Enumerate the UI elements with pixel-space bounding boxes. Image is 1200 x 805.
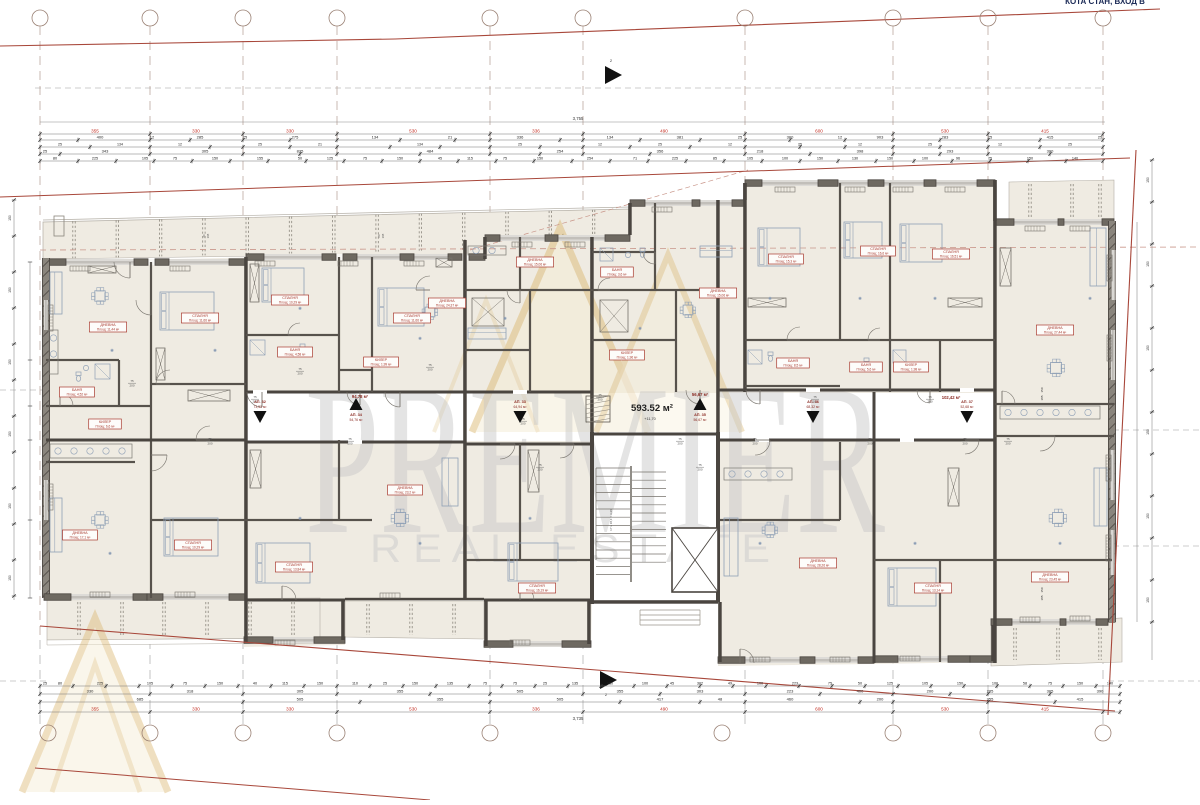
svg-text:150: 150 bbox=[1146, 429, 1150, 435]
svg-text:75: 75 bbox=[173, 157, 177, 161]
svg-text:275: 275 bbox=[292, 135, 299, 140]
svg-text:400: 400 bbox=[857, 689, 864, 694]
svg-text:150: 150 bbox=[1040, 587, 1044, 592]
svg-text:336: 336 bbox=[532, 129, 540, 134]
svg-text:75: 75 bbox=[698, 463, 702, 467]
svg-text:343: 343 bbox=[102, 149, 109, 154]
svg-text:484: 484 bbox=[427, 149, 434, 154]
svg-text:355: 355 bbox=[437, 697, 444, 702]
svg-text:356: 356 bbox=[657, 149, 664, 154]
svg-text:Площ: 10,29 м²: Площ: 10,29 м² bbox=[182, 546, 204, 550]
svg-text:✺: ✺ bbox=[298, 516, 302, 521]
svg-text:✺: ✺ bbox=[418, 541, 422, 546]
svg-text:285: 285 bbox=[197, 135, 204, 140]
svg-text:390: 390 bbox=[1047, 149, 1054, 154]
svg-text:БАНЯ: БАНЯ bbox=[861, 363, 871, 367]
svg-text:400: 400 bbox=[97, 135, 104, 140]
svg-text:150: 150 bbox=[1077, 682, 1083, 686]
svg-text:АП. 34: АП. 34 bbox=[350, 413, 363, 417]
svg-text:75: 75 bbox=[813, 395, 817, 399]
svg-text:600: 600 bbox=[815, 129, 823, 134]
svg-text:40: 40 bbox=[253, 682, 257, 686]
svg-text:Площ: 15,06 м²: Площ: 15,06 м² bbox=[524, 263, 546, 267]
svg-text:СПАЛНЯ: СПАЛНЯ bbox=[870, 247, 886, 251]
svg-text:БАНЯ: БАНЯ bbox=[72, 388, 82, 392]
svg-text:СПАЛНЯ: СПАЛНЯ bbox=[925, 584, 941, 588]
svg-text:25: 25 bbox=[518, 143, 522, 147]
svg-text:283: 283 bbox=[942, 135, 949, 140]
svg-text:130: 130 bbox=[852, 157, 858, 161]
svg-text:835: 835 bbox=[297, 149, 304, 154]
svg-text:223: 223 bbox=[787, 689, 794, 694]
svg-text:Площ: 11,66 м²: Площ: 11,66 м² bbox=[401, 319, 423, 323]
svg-text:302: 302 bbox=[697, 682, 703, 686]
svg-text:150: 150 bbox=[8, 215, 12, 221]
svg-text:318: 318 bbox=[187, 689, 194, 694]
svg-text:150: 150 bbox=[8, 503, 12, 509]
svg-text:Площ: 1,99 м²: Площ: 1,99 м² bbox=[371, 363, 392, 367]
svg-text:Площ: 4,52 м²: Площ: 4,52 м² bbox=[67, 393, 88, 397]
svg-text:ДНЕВНА: ДНЕВНА bbox=[439, 299, 455, 303]
svg-text:150: 150 bbox=[8, 575, 12, 581]
svg-text:355: 355 bbox=[91, 707, 99, 712]
svg-text:593.52 м²: 593.52 м² bbox=[631, 403, 673, 414]
svg-text:530: 530 bbox=[409, 707, 417, 712]
svg-text:75: 75 bbox=[208, 437, 212, 441]
svg-text:150: 150 bbox=[8, 359, 12, 365]
svg-text:100: 100 bbox=[757, 682, 763, 686]
svg-text:134: 134 bbox=[117, 143, 123, 147]
svg-text:390: 390 bbox=[1097, 689, 1104, 694]
svg-text:150: 150 bbox=[8, 431, 12, 437]
svg-text:150: 150 bbox=[397, 157, 403, 161]
svg-text:200: 200 bbox=[520, 421, 525, 425]
svg-text:КИЛЕР: КИЛЕР bbox=[905, 363, 918, 367]
svg-text:25: 25 bbox=[43, 149, 48, 154]
svg-text:Площ: 13,84 м²: Площ: 13,84 м² bbox=[283, 568, 305, 572]
svg-text:КОТА СТАН, ВХОД В: КОТА СТАН, ВХОД В bbox=[1065, 0, 1145, 6]
svg-text:Площ: 23,45 м²: Площ: 23,45 м² bbox=[1039, 578, 1061, 582]
svg-text:БАНЯ: БАНЯ bbox=[290, 348, 300, 352]
svg-text:75: 75 bbox=[928, 395, 932, 399]
svg-text:25: 25 bbox=[658, 143, 662, 147]
svg-text:21: 21 bbox=[318, 143, 322, 147]
svg-text:75: 75 bbox=[503, 157, 507, 161]
svg-text:150: 150 bbox=[1146, 177, 1150, 183]
svg-text:195: 195 bbox=[381, 233, 385, 238]
svg-text:✺: ✺ bbox=[108, 551, 112, 556]
svg-text:200: 200 bbox=[962, 441, 967, 445]
svg-text:✺: ✺ bbox=[933, 296, 937, 301]
svg-text:355: 355 bbox=[617, 689, 624, 694]
svg-text:25: 25 bbox=[243, 135, 248, 140]
svg-text:Площ: 6,6 м²: Площ: 6,6 м² bbox=[96, 425, 115, 429]
svg-text:✺: ✺ bbox=[298, 306, 302, 311]
svg-text:200: 200 bbox=[537, 467, 542, 471]
svg-text:75: 75 bbox=[483, 682, 487, 686]
svg-text:150: 150 bbox=[957, 682, 963, 686]
svg-text:✺: ✺ bbox=[1088, 296, 1092, 301]
svg-text:293: 293 bbox=[947, 149, 954, 154]
svg-text:336: 336 bbox=[517, 135, 524, 140]
svg-text:125: 125 bbox=[887, 682, 893, 686]
svg-text:200: 200 bbox=[927, 689, 934, 694]
svg-text:БАНЯ: БАНЯ bbox=[612, 268, 622, 272]
svg-text:330: 330 bbox=[286, 707, 294, 712]
svg-text:75: 75 bbox=[428, 363, 432, 367]
svg-text:Площ: 16,51 м²: Площ: 16,51 м² bbox=[940, 255, 962, 259]
svg-text:140: 140 bbox=[1107, 682, 1113, 686]
svg-text:100: 100 bbox=[642, 682, 648, 686]
svg-text:200: 200 bbox=[597, 397, 602, 401]
svg-text:150: 150 bbox=[1027, 157, 1033, 161]
svg-text:134: 134 bbox=[417, 143, 423, 147]
svg-text:415: 415 bbox=[1077, 697, 1084, 702]
svg-text:185: 185 bbox=[1040, 395, 1044, 400]
svg-text:71: 71 bbox=[633, 157, 637, 161]
svg-text:460: 460 bbox=[787, 697, 794, 702]
svg-text:530: 530 bbox=[941, 707, 949, 712]
svg-text:140: 140 bbox=[1072, 157, 1078, 161]
svg-text:200: 200 bbox=[347, 441, 352, 445]
svg-text:Площ: 1,98 м²: Площ: 1,98 м² bbox=[901, 368, 922, 372]
svg-text:СПАЛНЯ: СПАЛНЯ bbox=[185, 541, 201, 545]
svg-text:300: 300 bbox=[787, 135, 794, 140]
svg-text:17 x 18,1 = 3,26: 17 x 18,1 = 3,26 bbox=[609, 509, 613, 531]
svg-text:Площ: 17,1 м²: Площ: 17,1 м² bbox=[70, 536, 91, 540]
svg-text:75: 75 bbox=[753, 437, 757, 441]
svg-text:ДНЕВНА: ДНЕВНА bbox=[1042, 573, 1058, 577]
svg-text:✺: ✺ bbox=[768, 296, 772, 301]
svg-text:80: 80 bbox=[53, 157, 57, 161]
svg-text:381: 381 bbox=[677, 135, 684, 140]
svg-text:+11,70: +11,70 bbox=[644, 417, 655, 421]
svg-text:100: 100 bbox=[922, 157, 928, 161]
svg-text:200: 200 bbox=[752, 441, 757, 445]
svg-text:185: 185 bbox=[1040, 595, 1044, 600]
svg-text:105: 105 bbox=[922, 682, 928, 686]
svg-text:218: 218 bbox=[757, 149, 764, 154]
svg-text:ДНЕВНА: ДНЕВНА bbox=[72, 531, 88, 535]
svg-text:415: 415 bbox=[1041, 129, 1049, 134]
svg-text:415: 415 bbox=[1047, 135, 1054, 140]
svg-text:Площ: 16,19 м²: Площ: 16,19 м² bbox=[526, 589, 548, 593]
svg-text:96: 96 bbox=[956, 157, 960, 161]
svg-text:75: 75 bbox=[678, 437, 682, 441]
svg-text:ДНЕВНА: ДНЕВНА bbox=[810, 559, 826, 563]
svg-text:150: 150 bbox=[317, 682, 323, 686]
svg-text:75: 75 bbox=[363, 157, 367, 161]
svg-text:195: 195 bbox=[206, 233, 210, 238]
svg-text:225: 225 bbox=[672, 157, 678, 161]
svg-text:330: 330 bbox=[192, 707, 200, 712]
svg-text:56,67 м²: 56,67 м² bbox=[692, 392, 709, 397]
svg-text:50: 50 bbox=[858, 682, 862, 686]
svg-text:415: 415 bbox=[1041, 707, 1049, 712]
svg-text:ДНЕВНА: ДНЕВНА bbox=[397, 486, 413, 490]
svg-text:330: 330 bbox=[87, 689, 94, 694]
svg-text:25: 25 bbox=[258, 143, 262, 147]
svg-text:45: 45 bbox=[670, 682, 674, 686]
svg-text:58: 58 bbox=[1023, 682, 1027, 686]
svg-text:25: 25 bbox=[988, 135, 993, 140]
svg-text:СПАЛНЯ: СПАЛНЯ bbox=[282, 296, 298, 300]
svg-text:25: 25 bbox=[928, 143, 932, 147]
svg-text:Площ: 16,6 м²: Площ: 16,6 м² bbox=[868, 252, 889, 256]
svg-text:150: 150 bbox=[1146, 597, 1150, 603]
svg-text:✺: ✺ bbox=[418, 336, 422, 341]
svg-text:505: 505 bbox=[517, 689, 524, 694]
svg-text:КИЛЕР: КИЛЕР bbox=[621, 351, 634, 355]
svg-text:ДНЕВНА: ДНЕВНА bbox=[1047, 326, 1063, 330]
svg-text:305: 305 bbox=[202, 149, 209, 154]
svg-text:75: 75 bbox=[1006, 437, 1010, 441]
svg-text:600: 600 bbox=[815, 707, 823, 712]
svg-text:85: 85 bbox=[713, 157, 717, 161]
svg-text:СПАЛНЯ: СПАЛНЯ bbox=[778, 255, 794, 259]
svg-text:12: 12 bbox=[838, 135, 843, 140]
svg-text:115: 115 bbox=[467, 157, 473, 161]
svg-text:490: 490 bbox=[660, 129, 668, 134]
svg-text:94,78 м²: 94,78 м² bbox=[352, 394, 369, 399]
svg-text:336: 336 bbox=[532, 707, 540, 712]
svg-text:✺: ✺ bbox=[213, 348, 217, 353]
svg-text:✺: ✺ bbox=[528, 516, 532, 521]
svg-text:✺: ✺ bbox=[858, 296, 862, 301]
svg-text:200: 200 bbox=[877, 697, 884, 702]
svg-text:Площ: 4,58 м²: Площ: 4,58 м² bbox=[285, 353, 306, 357]
svg-text:75: 75 bbox=[598, 393, 602, 397]
svg-text:25: 25 bbox=[383, 682, 387, 686]
svg-text:105: 105 bbox=[747, 157, 753, 161]
svg-text:225: 225 bbox=[92, 157, 98, 161]
svg-text:75: 75 bbox=[183, 682, 187, 686]
svg-text:СПАЛНЯ: СПАЛНЯ bbox=[286, 563, 302, 567]
svg-text:АП. 36: АП. 36 bbox=[807, 400, 819, 404]
svg-text:305: 305 bbox=[1047, 689, 1054, 694]
svg-text:Площ: 3,6 м²: Площ: 3,6 м² bbox=[608, 273, 627, 277]
svg-text:254: 254 bbox=[557, 149, 564, 154]
svg-text:150: 150 bbox=[412, 682, 418, 686]
svg-text:12: 12 bbox=[998, 143, 1002, 147]
svg-text:115: 115 bbox=[282, 682, 288, 686]
svg-text:✺: ✺ bbox=[758, 541, 762, 546]
svg-text:АП. 33: АП. 33 bbox=[514, 400, 526, 404]
svg-text:355: 355 bbox=[987, 697, 994, 702]
svg-text:Площ: 28,26 м²: Площ: 28,26 м² bbox=[807, 564, 829, 568]
svg-text:330: 330 bbox=[286, 129, 294, 134]
svg-text:49: 49 bbox=[728, 682, 732, 686]
svg-text:530: 530 bbox=[409, 129, 417, 134]
svg-text:3,755: 3,755 bbox=[573, 116, 584, 121]
svg-text:200: 200 bbox=[677, 441, 682, 445]
svg-text:Площ: 11,66 м²: Площ: 11,66 м² bbox=[189, 319, 211, 323]
svg-text:КИЛЕР: КИЛЕР bbox=[99, 420, 112, 424]
svg-text:102,42 м²: 102,42 м² bbox=[942, 395, 961, 400]
svg-text:505: 505 bbox=[557, 697, 564, 702]
svg-text:Площ: 27,44 м²: Площ: 27,44 м² bbox=[1044, 331, 1066, 335]
svg-text:✺: ✺ bbox=[503, 316, 507, 321]
svg-text:100: 100 bbox=[782, 157, 788, 161]
svg-text:СПАЛНЯ: СПАЛНЯ bbox=[192, 314, 208, 318]
svg-text:200: 200 bbox=[927, 399, 932, 403]
svg-text:155: 155 bbox=[257, 157, 263, 161]
svg-text:25: 25 bbox=[58, 143, 62, 147]
svg-text:303: 303 bbox=[697, 689, 704, 694]
svg-text:150: 150 bbox=[217, 682, 223, 686]
svg-text:54,76 м²: 54,76 м² bbox=[350, 418, 364, 422]
svg-text:355: 355 bbox=[397, 689, 404, 694]
svg-text:398: 398 bbox=[857, 149, 864, 154]
svg-text:25: 25 bbox=[543, 682, 547, 686]
svg-text:ДНЕВНА: ДНЕВНА bbox=[100, 323, 116, 327]
svg-text:330: 330 bbox=[192, 129, 200, 134]
svg-text:КИЛЕР: КИЛЕР bbox=[375, 358, 388, 362]
svg-text:150: 150 bbox=[607, 682, 613, 686]
svg-text:254: 254 bbox=[587, 157, 593, 161]
svg-text:150: 150 bbox=[1146, 513, 1150, 519]
svg-text:200: 200 bbox=[697, 467, 702, 471]
svg-text:150: 150 bbox=[1146, 261, 1150, 267]
svg-text:Площ: 10,29 м²: Площ: 10,29 м² bbox=[279, 301, 301, 305]
svg-text:75: 75 bbox=[538, 463, 542, 467]
svg-text:Площ: 15,06 м²: Площ: 15,06 м² bbox=[707, 294, 729, 298]
svg-text:Площ: 11,44 м²: Площ: 11,44 м² bbox=[97, 328, 119, 332]
svg-text:135: 135 bbox=[572, 682, 578, 686]
svg-text:110: 110 bbox=[352, 682, 358, 686]
svg-text:✺: ✺ bbox=[913, 541, 917, 546]
svg-text:200: 200 bbox=[297, 371, 302, 375]
svg-text:25: 25 bbox=[738, 135, 743, 140]
svg-text:Площ: 23,2 м²: Площ: 23,2 м² bbox=[395, 491, 416, 495]
svg-text:75: 75 bbox=[828, 682, 832, 686]
svg-text:355: 355 bbox=[91, 129, 99, 134]
svg-text:200: 200 bbox=[129, 383, 134, 387]
svg-text:25: 25 bbox=[798, 143, 802, 147]
svg-text:134: 134 bbox=[372, 135, 379, 140]
svg-text:305: 305 bbox=[297, 689, 304, 694]
svg-text:БАНЯ: БАНЯ bbox=[788, 359, 798, 363]
svg-text:Площ: 13,14 м²: Площ: 13,14 м² bbox=[922, 589, 944, 593]
svg-text:505: 505 bbox=[297, 697, 304, 702]
svg-text:56,67 м²: 56,67 м² bbox=[694, 418, 708, 422]
svg-text:150: 150 bbox=[887, 157, 893, 161]
svg-text:75: 75 bbox=[963, 437, 967, 441]
svg-text:490: 490 bbox=[660, 707, 668, 712]
svg-text:150: 150 bbox=[8, 287, 12, 293]
svg-text:903: 903 bbox=[877, 135, 884, 140]
svg-text:Площ: 5,6 м²: Площ: 5,6 м² bbox=[857, 368, 876, 372]
svg-text:ДНЕВНА: ДНЕВНА bbox=[710, 289, 726, 293]
svg-text:200: 200 bbox=[867, 441, 872, 445]
svg-text:100: 100 bbox=[992, 682, 998, 686]
svg-text:Площ: 1,96 м²: Площ: 1,96 м² bbox=[617, 356, 638, 360]
svg-text:75: 75 bbox=[513, 682, 517, 686]
svg-text:75: 75 bbox=[253, 395, 257, 399]
svg-text:12: 12 bbox=[178, 143, 182, 147]
svg-text:73,53 м²: 73,53 м² bbox=[254, 405, 268, 409]
svg-text:135: 135 bbox=[447, 682, 453, 686]
svg-text:СПАЛНЯ: СПАЛНЯ bbox=[943, 250, 959, 254]
svg-text:12: 12 bbox=[728, 143, 732, 147]
svg-text:25: 25 bbox=[1068, 143, 1072, 147]
svg-text:21: 21 bbox=[448, 135, 453, 140]
svg-text:СПАЛНЯ: СПАЛНЯ bbox=[404, 314, 420, 318]
svg-text:200: 200 bbox=[207, 441, 212, 445]
svg-text:12: 12 bbox=[150, 135, 155, 140]
svg-text:75: 75 bbox=[130, 379, 134, 383]
svg-text:150: 150 bbox=[537, 157, 543, 161]
svg-text:Площ: 15,3 м²: Площ: 15,3 м² bbox=[776, 260, 797, 264]
svg-text:75: 75 bbox=[1048, 682, 1052, 686]
svg-text:Площ: 8,5 м²: Площ: 8,5 м² bbox=[784, 364, 803, 368]
svg-text:223: 223 bbox=[792, 682, 798, 686]
svg-text:СПАЛНЯ: СПАЛНЯ bbox=[529, 584, 545, 588]
svg-text:✺: ✺ bbox=[638, 326, 642, 331]
svg-text:Площ: 24,37 м²: Площ: 24,37 м² bbox=[436, 304, 458, 308]
svg-text:75: 75 bbox=[988, 157, 992, 161]
svg-text:✺: ✺ bbox=[110, 348, 114, 353]
svg-text:✺: ✺ bbox=[1058, 541, 1062, 546]
svg-text:68,32 м²: 68,32 м² bbox=[807, 405, 821, 409]
svg-text:45: 45 bbox=[438, 157, 442, 161]
svg-text:АП. 35: АП. 35 bbox=[694, 413, 706, 417]
svg-text:75: 75 bbox=[868, 437, 872, 441]
svg-text:25: 25 bbox=[43, 682, 47, 686]
svg-text:АП. 37: АП. 37 bbox=[961, 400, 973, 404]
svg-text:200: 200 bbox=[427, 367, 432, 371]
svg-text:25: 25 bbox=[1098, 135, 1103, 140]
svg-text:134: 134 bbox=[607, 135, 614, 140]
svg-text:225: 225 bbox=[97, 682, 103, 686]
svg-text:105: 105 bbox=[142, 157, 148, 161]
svg-text:52,68 м²: 52,68 м² bbox=[961, 405, 975, 409]
svg-text:150: 150 bbox=[212, 157, 218, 161]
svg-text:150: 150 bbox=[817, 157, 823, 161]
svg-text:150: 150 bbox=[1146, 345, 1150, 351]
svg-text:48: 48 bbox=[718, 697, 723, 702]
svg-text:285: 285 bbox=[987, 689, 994, 694]
svg-text:150: 150 bbox=[1040, 387, 1044, 392]
svg-text:75: 75 bbox=[348, 437, 352, 441]
svg-text:417: 417 bbox=[657, 697, 664, 702]
svg-text:685: 685 bbox=[137, 697, 144, 702]
svg-text:64,94 м²: 64,94 м² bbox=[514, 405, 528, 409]
svg-text:530: 530 bbox=[941, 129, 949, 134]
svg-text:12: 12 bbox=[598, 143, 602, 147]
svg-text:200: 200 bbox=[1005, 441, 1010, 445]
svg-text:80: 80 bbox=[58, 682, 62, 686]
svg-text:105: 105 bbox=[147, 682, 153, 686]
svg-text:ДНЕВНА: ДНЕВНА bbox=[527, 258, 543, 262]
svg-text:АП. 32: АП. 32 bbox=[254, 400, 266, 404]
svg-text:125: 125 bbox=[327, 157, 333, 161]
svg-text:50: 50 bbox=[298, 157, 302, 161]
svg-text:75: 75 bbox=[298, 367, 302, 371]
svg-text:3,735: 3,735 bbox=[573, 716, 584, 721]
svg-text:12: 12 bbox=[858, 143, 862, 147]
